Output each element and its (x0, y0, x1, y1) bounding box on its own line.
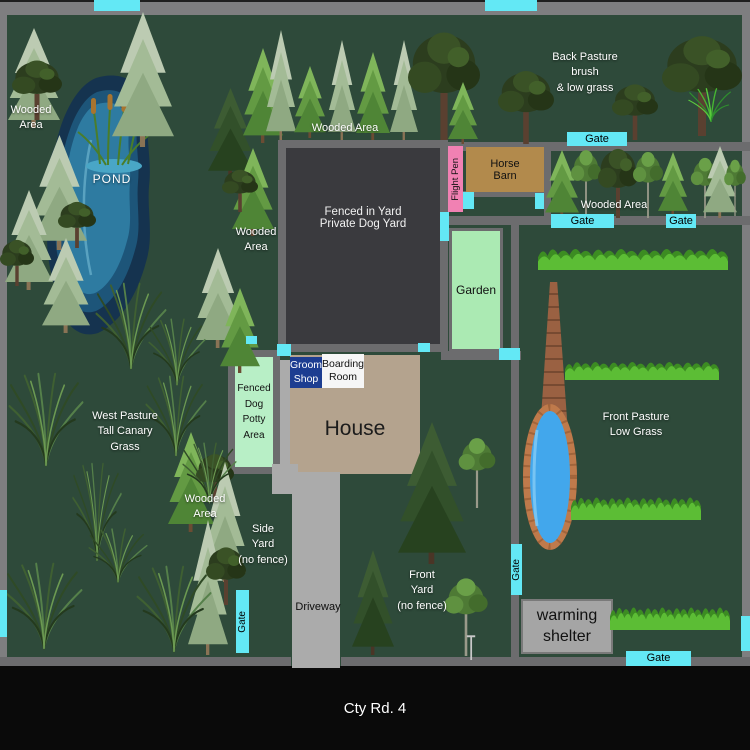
gate-marker: Gate (236, 590, 249, 653)
label-driveway: Driveway (295, 600, 340, 615)
light-pole (464, 634, 478, 660)
gate-marker: Gate (551, 214, 614, 228)
label-wooded-area-top: Wooded Area (312, 121, 378, 136)
grass-clump-bright (688, 88, 734, 122)
gate-marker (0, 590, 7, 637)
grass-strip (565, 356, 719, 380)
gate-marker (499, 348, 520, 360)
tree-conifer-pale (42, 238, 90, 333)
gate-marker (440, 212, 449, 241)
tree-conifer-pale (266, 30, 296, 140)
gate-label: Gate (647, 653, 671, 664)
gate-marker (418, 343, 430, 352)
gate-label: Gate (238, 611, 248, 633)
label-back-pasture: Back Pasture brush & low grass (552, 50, 617, 96)
tree-deciduous-dark (222, 168, 258, 212)
label-front-yard: Front Yard (no fence) (397, 568, 447, 614)
label-wooded-area-nw: Wooded Area (11, 103, 52, 134)
label-wooded-area-mid: Wooded Area (236, 225, 277, 256)
tree-sapling-green (455, 436, 499, 508)
gate-label: Gate (585, 134, 609, 145)
tree-sapling-green (722, 158, 748, 216)
gate-marker: Gate (567, 132, 627, 146)
label-front-pasture: Front Pasture Low Grass (603, 410, 670, 441)
label-wooded-area-sw: Wooded Area (185, 492, 226, 523)
map-features-layer: GateGateGateGateGateGate (0, 0, 750, 750)
grass-strip (538, 242, 728, 270)
label-county-road: Cty Rd. 4 (344, 698, 407, 719)
grass-strip (610, 600, 730, 630)
grass-strip (571, 490, 701, 520)
gate-label: Gate (571, 216, 595, 227)
gate-marker (246, 336, 257, 344)
label-pond: POND (93, 171, 132, 188)
tree-deciduous-dark (498, 68, 554, 144)
grass-tuft (136, 565, 212, 653)
tree-conifer-dark (352, 550, 394, 655)
gate-marker: Gate (626, 651, 691, 666)
property-map: Fenced in Yard Private Dog Yard Garden H… (0, 0, 750, 750)
gate-label: Gate (512, 559, 522, 581)
gate-marker (741, 616, 750, 651)
grass-tuft (5, 562, 83, 650)
tree-deciduous-dark (58, 200, 96, 248)
tree-conifer-bright (658, 152, 688, 216)
gate-label: Gate (669, 216, 693, 227)
tree-deciduous-dark (0, 238, 34, 286)
gate-marker (277, 344, 291, 356)
gate-marker (535, 193, 544, 209)
tree-conifer-pale (112, 12, 174, 147)
gate-marker (94, 0, 140, 11)
label-west-pasture: West Pasture Tall Canary Grass (92, 409, 158, 455)
label-side-yard: Side Yard (no fence) (238, 522, 288, 568)
gate-marker: Gate (511, 544, 522, 595)
gate-marker (463, 192, 474, 209)
grass-tuft (8, 372, 84, 467)
gate-marker: Gate (666, 214, 696, 228)
gate-marker (485, 0, 537, 11)
tree-conifer-bright (220, 288, 260, 373)
tree-conifer-bright (448, 82, 478, 144)
label-wooded-area-east: Wooded Area (581, 198, 647, 213)
